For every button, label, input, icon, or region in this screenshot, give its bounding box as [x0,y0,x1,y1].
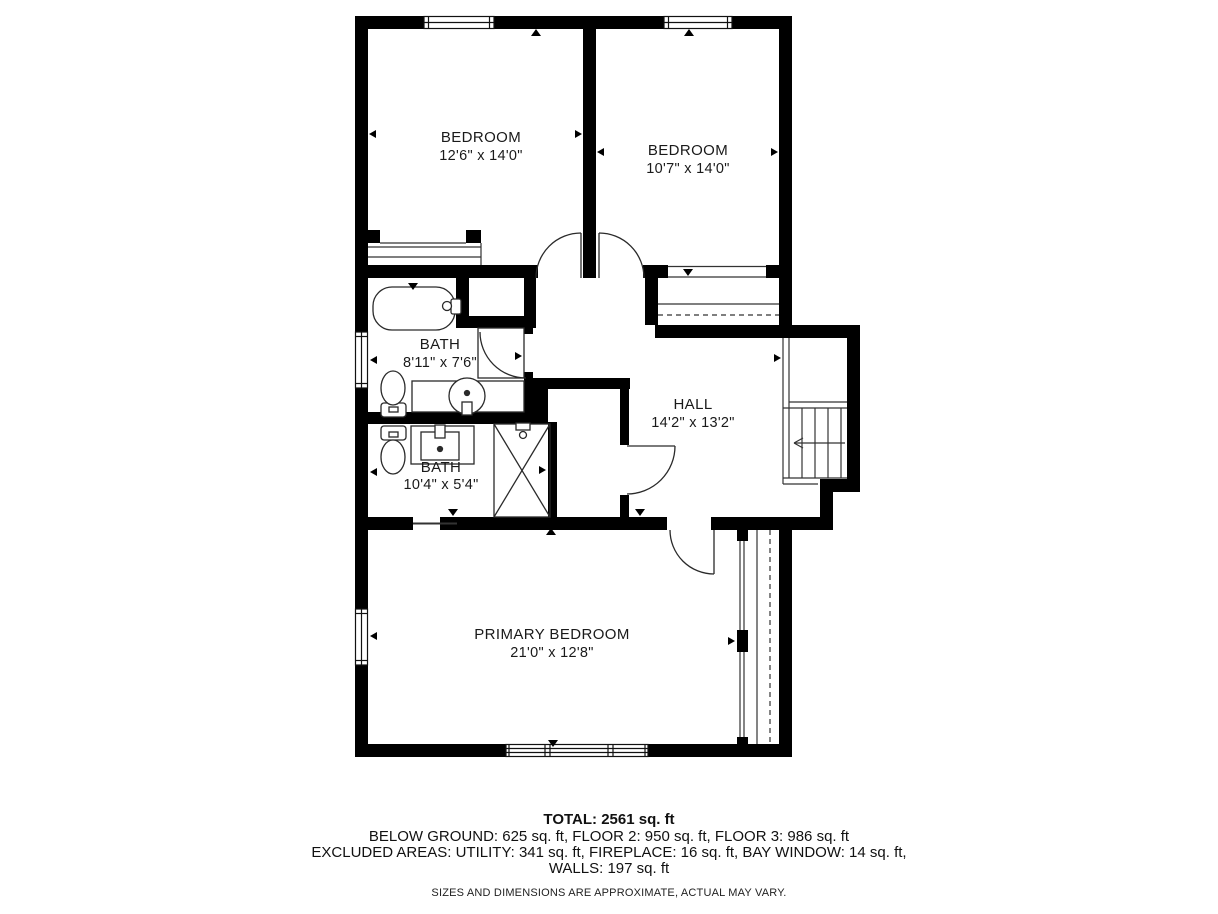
bath-2-label: BATH [421,459,462,476]
window-primary-bottom [506,745,648,757]
floor-plan-canvas: BEDROOM 12'6" x 14'0" BEDROOM 10'7" x 14… [0,0,1218,914]
bedroom-2-label: BEDROOM [648,142,728,159]
disclaimer: SIZES AND DIMENSIONS ARE APPROXIMATE, AC… [0,887,1218,899]
staircase [783,338,847,484]
toilet-bath-2 [381,426,406,474]
primary-bedroom-label: PRIMARY BEDROOM [474,626,629,643]
primary-bedroom-dimensions: 21'0" x 12'8" [510,645,593,661]
bath-1-dimensions: 8'11" x 7'6" [403,355,477,371]
bedroom-2-dimensions: 10'7" x 14'0" [646,161,729,177]
bathtub [373,287,461,330]
floor-plan-page: BEDROOM 12'6" x 14'0" BEDROOM 10'7" x 14… [0,0,1218,914]
window-top-right [664,17,732,29]
door-hall-closet [627,446,675,494]
door-bedroom-1 [536,233,581,278]
closet-bedroom-2 [658,267,779,316]
door-bath-1 [478,328,526,378]
area-summary: TOTAL: 2561 sq. ft BELOW GROUND: 625 sq.… [0,810,1218,899]
excluded-areas: EXCLUDED AREAS: UTILITY: 341 sq. ft, FIR… [0,845,1218,861]
toilet-bath-1 [381,371,406,417]
window-top-left [424,17,494,29]
total-area: TOTAL: 2561 sq. ft [0,810,1218,829]
door-bedroom-2 [599,233,644,278]
window-bath [356,332,368,388]
walls-area: WALLS: 197 sq. ft [0,861,1218,877]
bedroom-1-dimensions: 12'6" x 14'0" [439,148,522,164]
floor-areas: BELOW GROUND: 625 sq. ft, FLOOR 2: 950 s… [0,829,1218,845]
hall-label: HALL [673,396,712,413]
bath-1-label: BATH [420,336,461,353]
bedroom-1-label: BEDROOM [441,129,521,146]
door-primary-bedroom [670,530,714,574]
window-primary-left [356,609,368,665]
closet-bedroom-1 [368,243,481,265]
vanity-sink-bath-1 [412,378,524,415]
hall-dimensions: 14'2" x 13'2" [651,415,734,431]
bath-2-dimensions: 10'4" x 5'4" [403,477,478,493]
